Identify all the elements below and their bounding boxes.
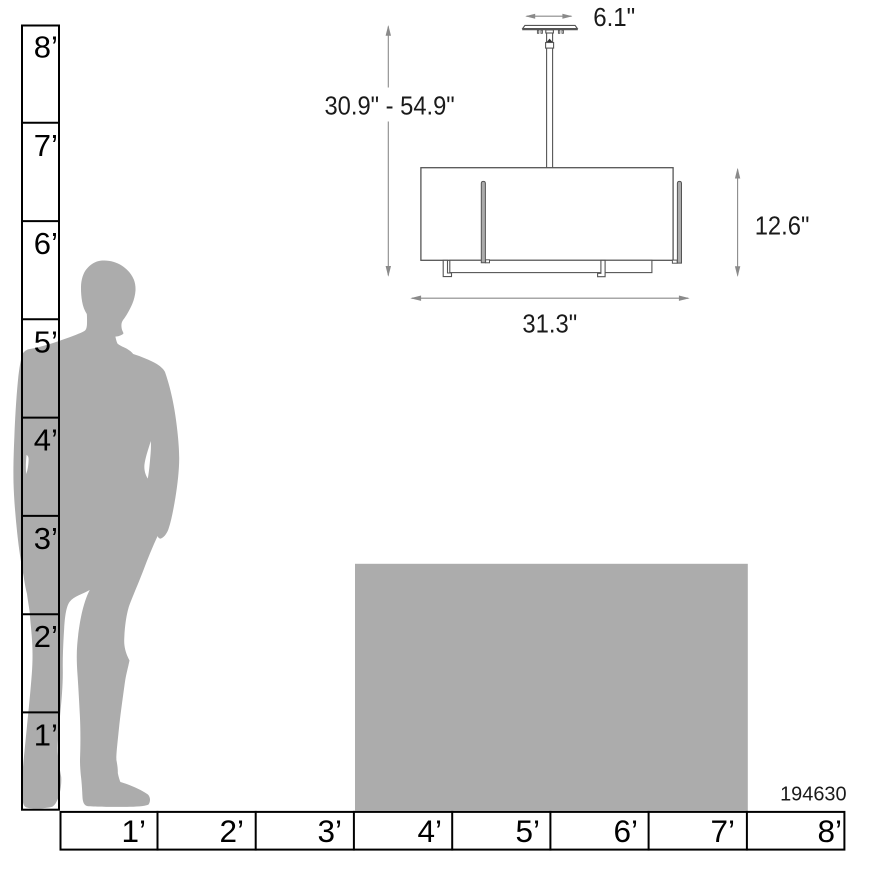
svg-text:5’: 5’ [515,813,540,849]
svg-text:6.1": 6.1" [593,4,635,32]
svg-text:194630: 194630 [780,783,847,805]
svg-text:1’: 1’ [121,813,146,849]
svg-text:8’: 8’ [817,813,842,849]
svg-text:3’: 3’ [34,521,58,556]
svg-text:2’: 2’ [219,813,244,849]
svg-text:6’: 6’ [34,226,58,261]
svg-text:2’: 2’ [34,619,58,654]
svg-text:6’: 6’ [613,813,638,849]
svg-text:5’: 5’ [34,324,58,359]
svg-text:1’: 1’ [34,717,58,752]
svg-text:8’: 8’ [34,30,58,65]
svg-text:30.9" - 54.9": 30.9" - 54.9" [325,93,455,121]
svg-text:12.6": 12.6" [755,212,810,240]
svg-text:3’: 3’ [317,813,342,849]
svg-text:31.3": 31.3" [522,311,577,339]
svg-text:7’: 7’ [710,813,735,849]
svg-text:7’: 7’ [34,128,58,163]
svg-text:4’: 4’ [417,813,442,849]
svg-text:4’: 4’ [34,423,58,458]
